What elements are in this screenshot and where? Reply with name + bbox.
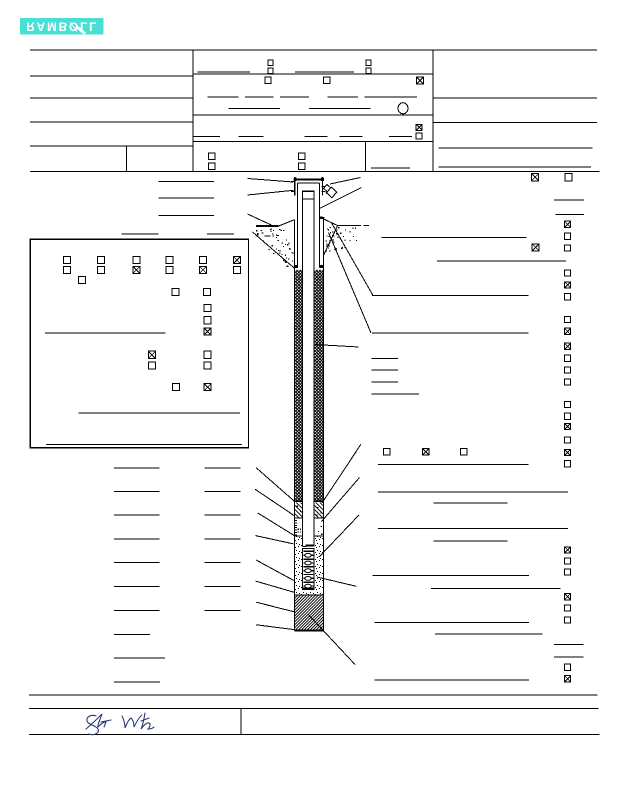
svg-text:RAMBØLL: RAMBØLL: [26, 20, 98, 34]
